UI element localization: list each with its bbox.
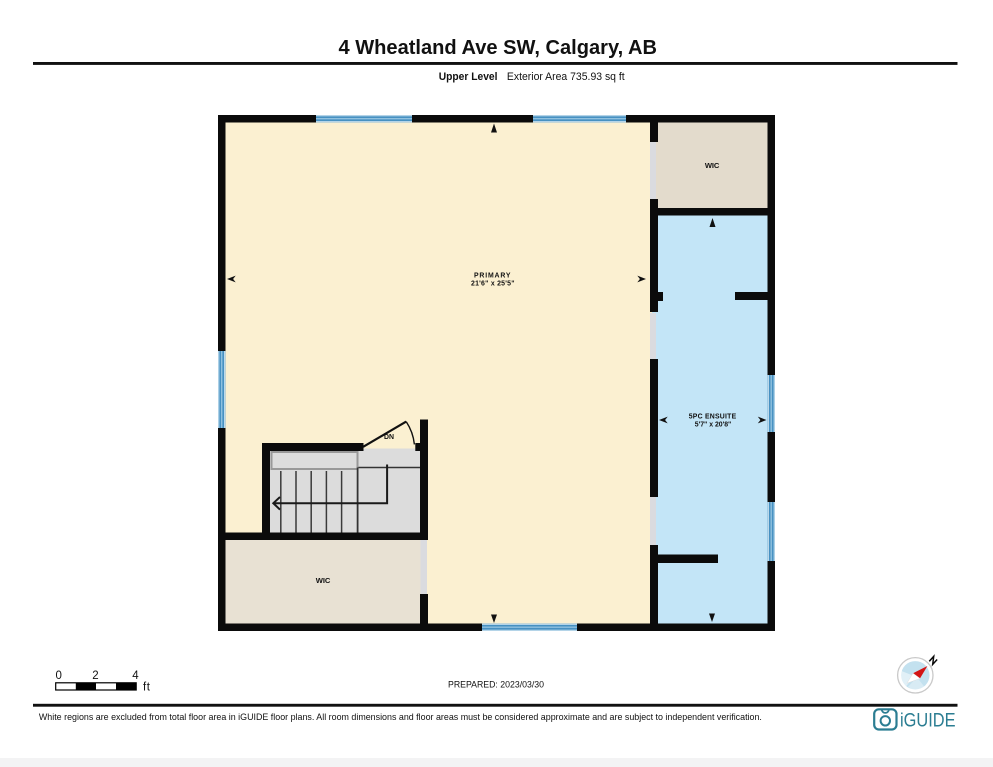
svg-text:21'6" x 25'5": 21'6" x 25'5" — [471, 280, 515, 287]
svg-text:5PC ENSUITE: 5PC ENSUITE — [689, 413, 737, 420]
svg-text:Exterior Area 735.93 sq ft: Exterior Area 735.93 sq ft — [507, 71, 625, 83]
svg-text:4 Wheatland Ave SW, Calgary, A: 4 Wheatland Ave SW, Calgary, AB — [339, 37, 658, 59]
svg-text:PRIMARY: PRIMARY — [474, 272, 511, 279]
svg-text:2: 2 — [92, 670, 98, 682]
svg-text:DN: DN — [384, 432, 394, 441]
svg-text:5'7" x 20'8": 5'7" x 20'8" — [695, 421, 732, 428]
svg-text:0: 0 — [56, 670, 62, 682]
svg-text:WIC: WIC — [705, 161, 720, 170]
svg-text:Upper Level: Upper Level — [439, 71, 498, 83]
svg-text:WIC: WIC — [316, 576, 331, 585]
svg-text:ft: ft — [143, 681, 151, 693]
svg-text:White regions are excluded fro: White regions are excluded from total fl… — [39, 712, 762, 723]
svg-text:4: 4 — [132, 670, 139, 682]
svg-text:PREPARED: 2023/03/30: PREPARED: 2023/03/30 — [448, 678, 544, 689]
svg-text:iGUIDE: iGUIDE — [900, 709, 956, 731]
